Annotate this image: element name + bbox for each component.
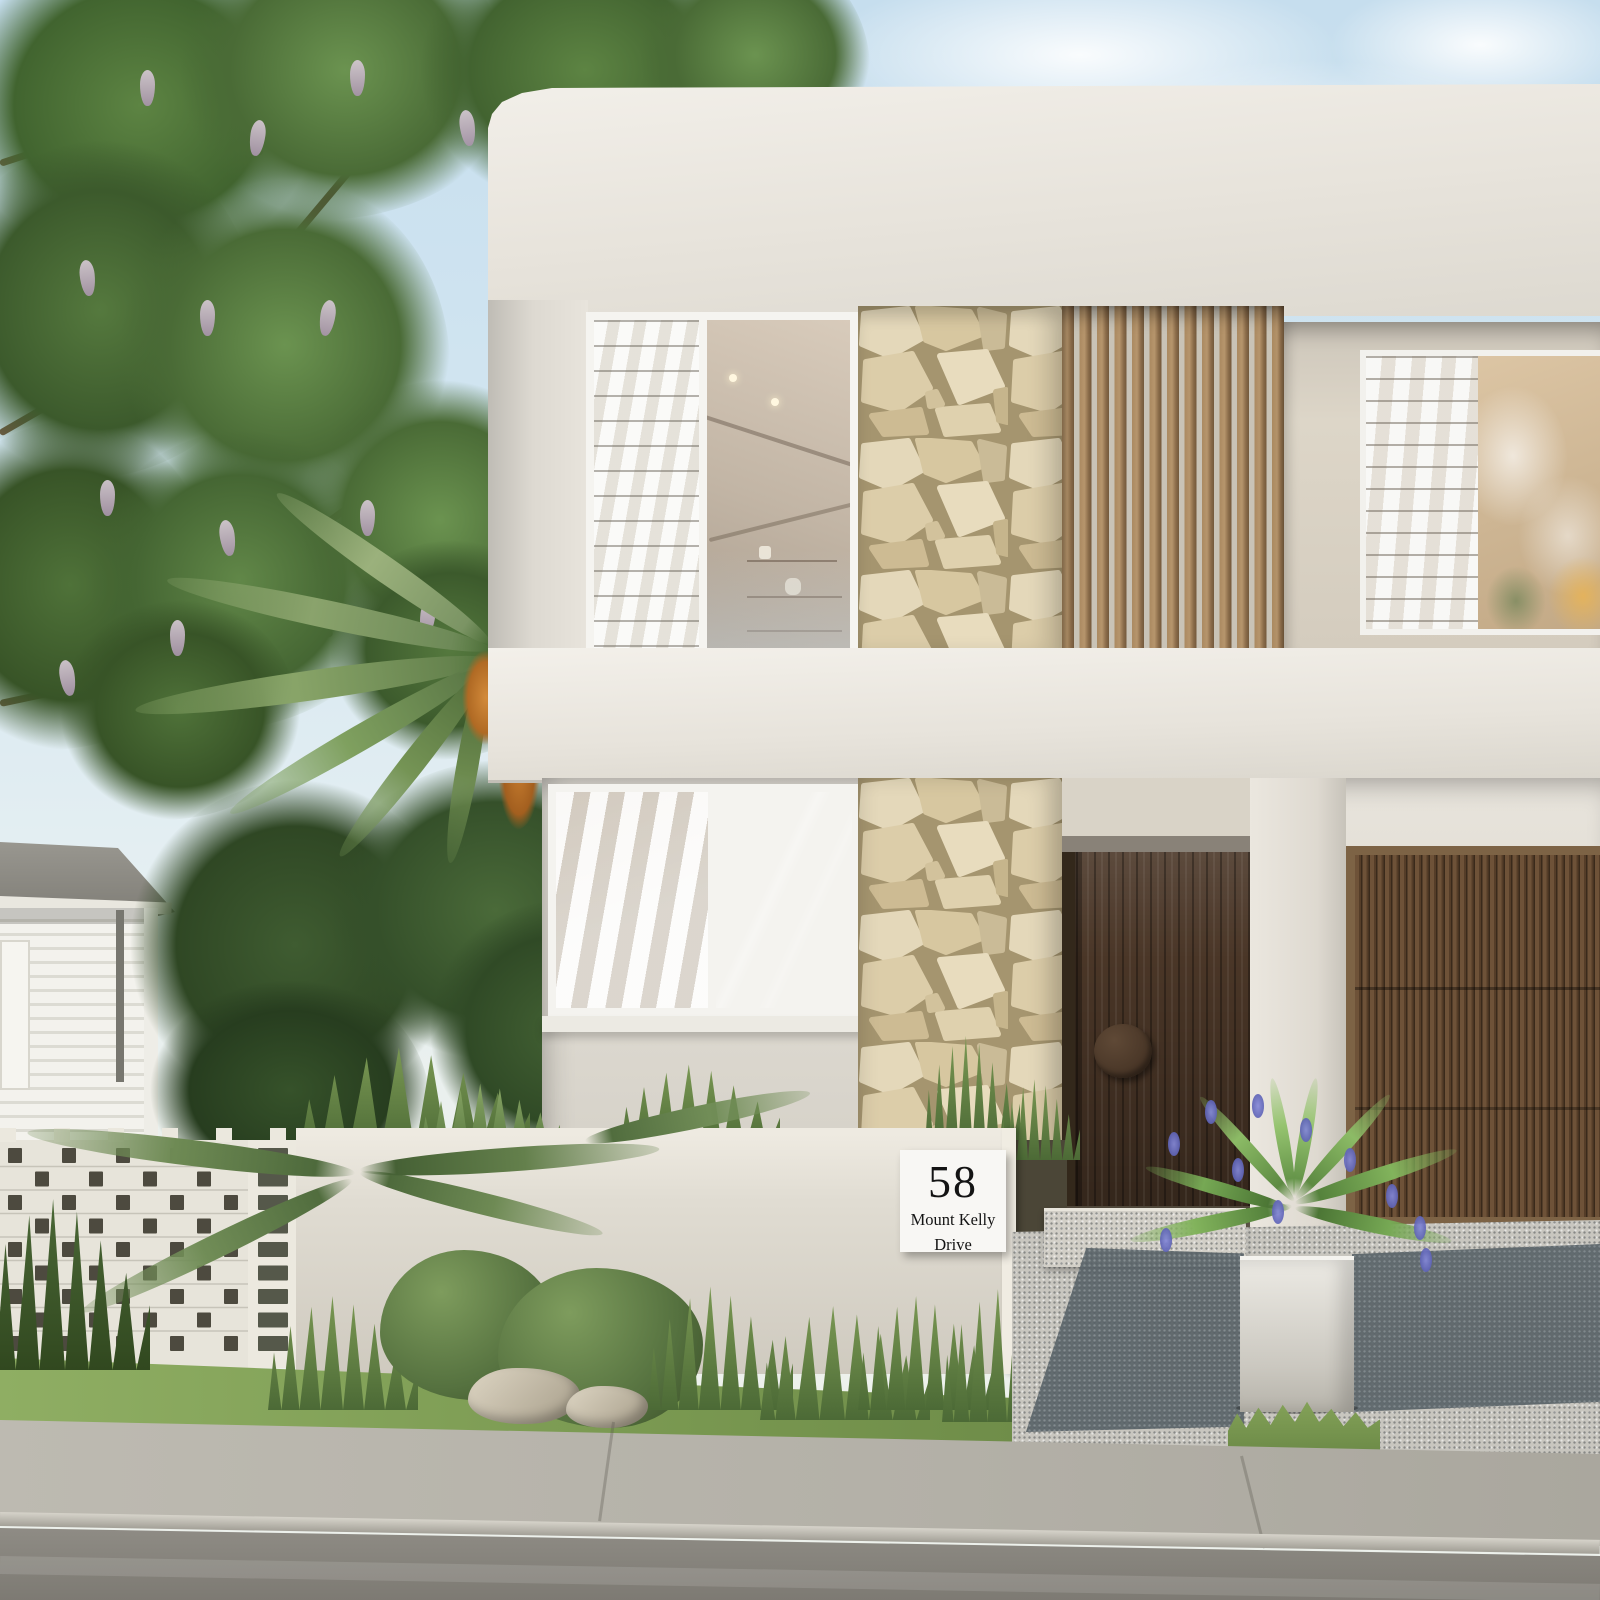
window-glass-pane — [1478, 356, 1600, 629]
upper-left-window — [586, 312, 858, 660]
street-name-line1: Mount Kelly — [900, 1210, 1006, 1230]
ceiling-downlight — [729, 374, 737, 382]
timber-slat-screen — [1062, 306, 1284, 654]
branch-reflection — [707, 414, 850, 470]
agapanthus-flower — [1205, 1100, 1217, 1124]
agapanthus-flower — [1160, 1228, 1172, 1252]
window-glass-pane — [707, 320, 850, 652]
upper-facade-left-strip — [488, 300, 588, 660]
window-louvre-pane — [1366, 356, 1478, 629]
mid-floor-band — [488, 648, 1600, 783]
lower-left-window — [548, 784, 860, 1016]
window-curtain-pane — [556, 792, 708, 1008]
agapanthus-flower — [1300, 1118, 1312, 1142]
window-mullion — [699, 320, 707, 652]
sky-reflection — [707, 550, 850, 652]
parapet-upper-facade — [488, 84, 1600, 316]
window-sill — [542, 1016, 864, 1032]
window-glass-pane — [716, 792, 852, 1008]
garden-rock — [468, 1368, 580, 1424]
stone-pillar-upper-shading — [858, 306, 1062, 654]
neighbour-door — [0, 940, 30, 1090]
agapanthus-flower — [1420, 1248, 1432, 1272]
front-door — [1075, 852, 1252, 1208]
street-name-line2: Drive — [900, 1235, 1006, 1255]
agapanthus-flower — [1344, 1148, 1356, 1172]
architectural-render-scene: 58 Mount Kelly Drive — [0, 0, 1600, 1600]
planter-box — [1240, 1256, 1354, 1412]
agapanthus-flower — [1272, 1200, 1284, 1224]
house-number-sign: 58 Mount Kelly Drive — [900, 1150, 1006, 1252]
ceiling-downlight — [771, 398, 779, 406]
driveway-shadow-right — [1352, 1244, 1600, 1412]
garage-panel-joint — [1355, 987, 1600, 990]
agapanthus-flower — [1414, 1216, 1426, 1240]
agapanthus-flower — [1232, 1158, 1244, 1182]
garden-rock — [566, 1386, 648, 1428]
branch-reflection — [709, 502, 850, 542]
agapanthus-flower — [1168, 1132, 1180, 1156]
window-louvre-pane — [594, 320, 699, 652]
agapanthus-flower — [1386, 1184, 1398, 1208]
door-disc-handle — [1094, 1024, 1152, 1078]
garage-panel-joint — [1355, 1107, 1600, 1110]
house-number: 58 — [900, 1159, 1006, 1205]
agapanthus-flower — [1252, 1094, 1264, 1118]
upper-right-window — [1360, 350, 1600, 635]
window-mullion — [708, 792, 716, 1008]
